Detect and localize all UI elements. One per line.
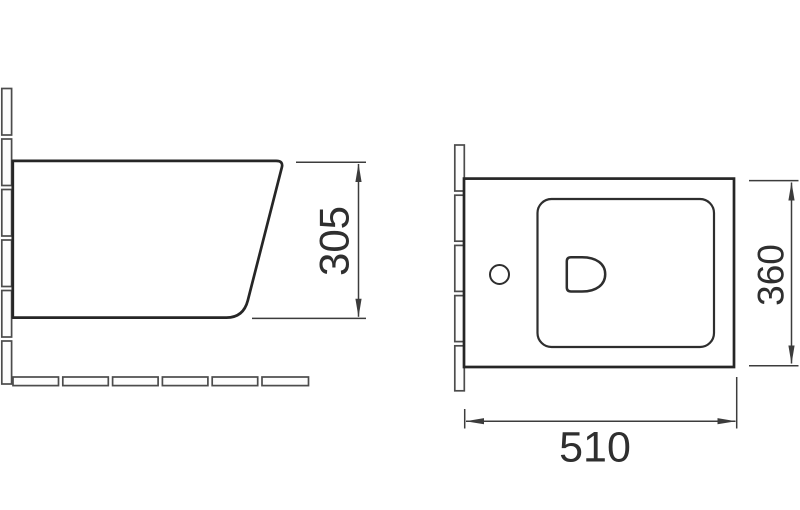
svg-text:360: 360 <box>751 244 792 306</box>
svg-text:305: 305 <box>310 206 357 276</box>
svg-text:510: 510 <box>559 424 631 472</box>
